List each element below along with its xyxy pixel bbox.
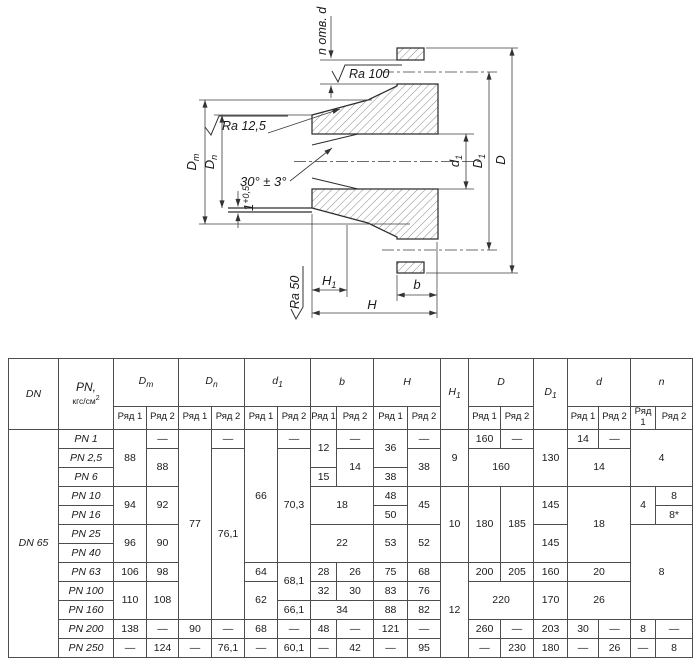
subheader-ryad2: Ряд 2 [147,407,179,430]
cell-pn: PN 10 [59,486,114,505]
header-D-base: D [497,376,505,388]
ra125-label: Ra 12,5 [222,119,266,133]
cell: — [114,638,147,657]
cell-pn: PN 6 [59,467,114,486]
header-pn-units-sup: 2 [96,395,100,402]
cell: 185 [501,486,534,562]
cell: 180 [469,486,501,562]
header-Dn-base: D [205,375,213,387]
holes-note-label: n отв. d [315,6,329,55]
bore-chamfer-top [312,134,358,145]
cell: 138 [114,619,147,638]
subheader-ryad2: Ряд 2 [656,407,693,430]
subheader-ryad2: Ряд 2 [212,407,245,430]
cell: 42 [337,638,374,657]
H1-label: H1 [322,273,336,290]
header-dn-label: DN [26,388,41,400]
cell: 203 [534,619,568,638]
cell: 8 [631,619,656,638]
subheader-ryad1: Ряд 1 [374,407,408,430]
cell: 94 [114,486,147,524]
cell: — [568,638,599,657]
header-D1: D1 [534,359,568,430]
cell: 14 [337,448,374,486]
table-row: PN 2,5 88 76,1 70,3 14 38 160 14 [9,448,693,467]
table-row: PN 10 94 92 18 48 45 10 180 185 145 18 4… [9,486,693,505]
cell: 145 [534,524,568,562]
cell: 88 [374,600,408,619]
cell: 14 [568,429,599,448]
cell: 9 [441,429,469,486]
cell-pn: PN 250 [59,638,114,657]
table-row: PN 200 138 — 90 — 68 — 48 — 121 — 260 — … [9,619,693,638]
table-row: PN 100 110 108 62 32 30 83 76 220 170 26 [9,581,693,600]
header-d-base: d [596,376,602,388]
subheader-ryad1: Ряд 1 [568,407,599,430]
cell: — [408,619,441,638]
cell: — [599,619,631,638]
table-row: DN 65 PN 1 88 — 77 — 66 — 12 — 36 — 9 16… [9,429,693,448]
cell: — [374,638,408,657]
cell: 20 [568,562,631,581]
header-b-base: b [339,376,345,388]
cell: 50 [374,505,408,524]
subheader-ryad1: Ряд 1 [245,407,278,430]
cell: 38 [408,448,441,486]
header-H: H [374,359,441,407]
cell: 90 [147,524,179,562]
cell: 48 [374,486,408,505]
cell: 200 [469,562,501,581]
Dn-label: Dn [202,155,219,169]
cell: 66 [245,429,278,562]
cell: 62 [245,581,278,619]
subheader-ryad1: Ряд 1 [114,407,147,430]
subheader-ryad1: Ряд 1 [311,407,337,430]
subheader-ryad2: Ряд 2 [278,407,311,430]
cell: — [212,619,245,638]
cell: — [278,429,311,448]
d1-label: d1 [447,155,464,167]
cell: — [408,429,441,448]
cell: — [212,429,245,448]
cell: 95 [408,638,441,657]
cell: 90 [179,619,212,638]
ra50-label: Ra 50 [288,276,302,309]
cell: — [501,619,534,638]
cell: — [278,619,311,638]
cell: 170 [534,581,568,619]
cell: 68,1 [278,562,311,600]
cell: 28 [311,562,337,581]
cell: 12 [311,429,337,467]
cell: 260 [469,619,501,638]
cell: 205 [501,562,534,581]
dimension-lines [205,16,512,313]
cell: 53 [374,524,408,562]
header-n-base: n [659,376,665,388]
flange-drawing: n отв. d Ra 100 Ra 12,5 Ra 50 30° ± 3° 1… [0,0,700,356]
cell: 130 [534,429,568,486]
cell: 26 [599,638,631,657]
subheader-ryad2: Ряд 2 [337,407,374,430]
cell-pn: PN 160 [59,600,114,619]
subheader-ryad1: Ряд 1 [469,407,501,430]
cell: 96 [114,524,147,562]
cell: 76,1 [212,448,245,619]
cell: 82 [408,600,441,619]
cell: 10 [441,486,469,562]
cell: 12 [441,562,469,657]
cell-pn: PN 25 [59,524,114,543]
spec-table: DN PN,кгс/см2 Dm Dn d1 b H H1 D D1 d n Р… [8,358,693,658]
flange-section [228,48,438,273]
bolt-ring-bottom-cap [397,262,424,273]
cell: 106 [114,562,147,581]
header-Dm-sub: m [146,379,153,389]
header-pn-label: PN, [76,380,96,394]
cell: 8 [656,638,693,657]
cell: 124 [147,638,179,657]
table-row: PN 250 — 124 — 76,1 — 60,1 — 42 — 95 — 2… [9,638,693,657]
cell: 160 [469,429,501,448]
cell: 83 [374,581,408,600]
cell: 76,1 [212,638,245,657]
cell: — [337,619,374,638]
header-b: b [311,359,374,407]
flange-lower-half [312,189,438,239]
cell: 26 [337,562,374,581]
Dm-label: Dm [184,153,201,170]
cell: 48 [311,619,337,638]
cell: 98 [147,562,179,581]
bolt-ring-top-cap [397,48,424,60]
cell: 88 [114,429,147,486]
header-Dn: Dn [179,359,245,407]
cell: — [311,638,337,657]
header-pn-units: кгс/см [72,396,95,406]
D1-label: D1 [470,154,487,168]
header-D: D [469,359,534,407]
cell: 77 [179,429,212,619]
cell: 64 [245,562,278,581]
subheader-ryad2: Ряд 2 [501,407,534,430]
header-d1: d1 [245,359,311,407]
cell: 52 [408,524,441,562]
cell-pn: PN 200 [59,619,114,638]
header-H-base: H [403,376,411,388]
cell: — [631,638,656,657]
cell: 66,1 [278,600,311,619]
cell: 230 [501,638,534,657]
ra100-label: Ra 100 [349,67,389,81]
cell: 76 [408,581,441,600]
cell: 34 [311,600,374,619]
subheader-ryad2: Ряд 2 [599,407,631,430]
subheader-ryad2: Ряд 2 [408,407,441,430]
cell: — [469,638,501,657]
header-d1-sub: 1 [278,379,283,389]
cell: 75 [374,562,408,581]
cell: 14 [568,448,631,486]
cell: 22 [311,524,374,562]
cell: 70,3 [278,448,311,562]
cell: 68 [408,562,441,581]
header-H1: H1 [441,359,469,430]
table-row: PN 63 106 98 64 68,1 28 26 75 68 12 200 … [9,562,693,581]
cell: 60,1 [278,638,311,657]
cell: 8 [631,524,693,619]
cell-pn: PN 100 [59,581,114,600]
cell: — [245,638,278,657]
header-dn: DN [9,359,59,430]
header-Dn-sub: n [213,379,218,389]
cell: 4 [631,429,693,486]
cell: 110 [114,581,147,619]
cell-pn: PN 1 [59,429,114,448]
cell: — [147,429,179,448]
header-Dm: Dm [114,359,179,407]
cell: 92 [147,486,179,524]
cell: 160 [469,448,534,486]
cell: 121 [374,619,408,638]
page: n отв. d Ra 100 Ra 12,5 Ra 50 30° ± 3° 1… [0,0,700,658]
cell: 30 [337,581,374,600]
cell: 30 [568,619,599,638]
cell: 220 [469,581,534,619]
cell: — [501,429,534,448]
drawing-labels: n отв. d Ra 100 Ra 12,5 Ra 50 30° ± 3° 1… [184,6,508,312]
cell: 88 [147,448,179,486]
cell: 8 [656,486,693,505]
cell-dn: DN 65 [9,429,59,657]
header-row-groups: DN PN,кгс/см2 Dm Dn d1 b H H1 D D1 d n [9,359,693,407]
cell: 4 [631,486,656,524]
cell: 36 [374,429,408,467]
bore-chamfer-bottom [312,178,358,189]
cell: 32 [311,581,337,600]
cell: — [656,619,693,638]
cell: 108 [147,581,179,619]
header-n: n [631,359,693,407]
cell: 38 [374,467,408,486]
cell: 18 [311,486,374,524]
subheader-ryad1: Ряд 1 [631,407,656,430]
subheader-ryad1: Ряд 1 [179,407,212,430]
cell-pn: PN 2,5 [59,448,114,467]
cell: 18 [568,486,631,562]
header-d: d [568,359,631,407]
header-pn: PN,кгс/см2 [59,359,114,430]
header-H1-base: H [448,386,456,398]
cell: 8* [656,505,693,524]
cell: 15 [311,467,337,486]
cell: — [147,619,179,638]
b-label: b [413,277,420,292]
D-label: D [493,155,508,164]
cell: 26 [568,581,631,619]
cell: 145 [534,486,568,524]
cell: — [599,429,631,448]
cell: 68 [245,619,278,638]
cell: — [337,429,374,448]
header-D1-base: D [544,386,552,398]
cell-pn: PN 16 [59,505,114,524]
cell: 45 [408,486,441,524]
cell-pn: PN 63 [59,562,114,581]
header-D1-sub: 1 [552,391,557,401]
cell: 180 [534,638,568,657]
header-H1-sub: 1 [456,391,461,401]
H-label: H [367,297,377,312]
cell: — [179,638,212,657]
cell-pn: PN 40 [59,543,114,562]
cell: 160 [534,562,568,581]
leader-angle [290,148,332,181]
